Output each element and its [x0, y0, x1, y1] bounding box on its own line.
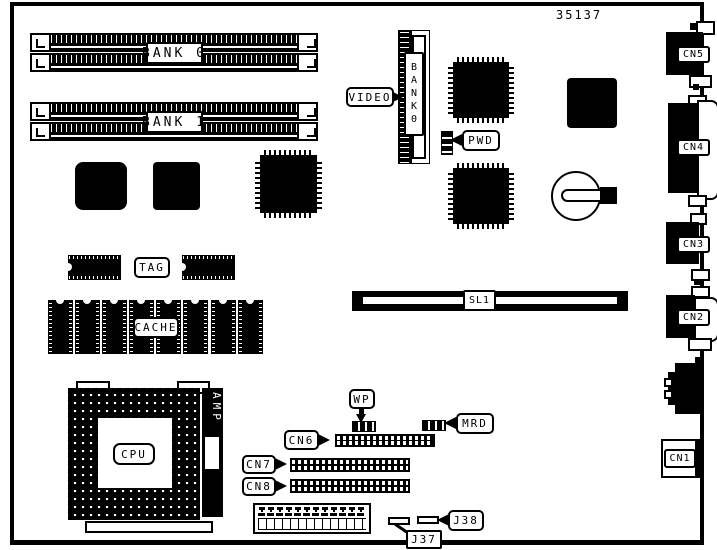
- cn6-pointer-icon: [318, 434, 330, 446]
- cache-chip: [211, 300, 236, 354]
- cn8-pointer-icon: [275, 480, 287, 492]
- amp-pad: [205, 437, 219, 469]
- keyboard-connector: [668, 372, 700, 405]
- motherboard-diagram: 35137 BANK 0 BANK 1 BANK0: [0, 0, 717, 550]
- tag-label: TAG: [134, 257, 170, 278]
- cn4-label: CN4: [677, 139, 710, 156]
- video-label: VIDEO: [346, 87, 394, 107]
- cn8-header: [290, 479, 410, 493]
- video-bank0-label: BANK0: [404, 52, 424, 136]
- edge-tab: [688, 195, 707, 207]
- cn8-label: CN8: [242, 477, 276, 496]
- keyboard-connector-pin: [664, 378, 673, 387]
- j38-label: J38: [448, 510, 484, 531]
- simm-latch-icon: [30, 33, 51, 52]
- power-connector: [253, 503, 371, 534]
- wp-pointer-icon: [356, 414, 366, 423]
- bank0-label: BANK 0: [146, 42, 203, 64]
- part-number: 35137: [556, 8, 602, 22]
- mrd-pointer-icon: [444, 417, 456, 429]
- cn1-connector-edge: [695, 439, 704, 478]
- cache-chip: [75, 300, 100, 354]
- board-edge-bottom: [10, 540, 704, 545]
- cn6-header: [335, 434, 435, 447]
- cn3-label: CN3: [677, 236, 710, 253]
- chip: [75, 162, 127, 210]
- cache-chip: [102, 300, 127, 354]
- simm-latch-icon: [30, 102, 51, 121]
- chip: [567, 78, 617, 128]
- cn7-pointer-icon: [275, 458, 287, 470]
- wp-label: WP: [349, 389, 375, 409]
- tag-chip: [182, 255, 235, 280]
- tag-chip: [68, 255, 121, 280]
- pwd-pointer-icon: [450, 134, 462, 146]
- cache-chip: [48, 300, 73, 354]
- cn5-label: CN5: [677, 46, 710, 63]
- cpu-socket-lever: [85, 521, 213, 533]
- edge-tab: [694, 279, 700, 285]
- cache-label: CACHE: [133, 317, 179, 338]
- cache-chip: [183, 300, 208, 354]
- board-edge-left: [10, 2, 14, 545]
- battery-clip-end: [600, 187, 617, 204]
- cache-chip: [238, 300, 263, 354]
- keyboard-connector: [675, 405, 700, 414]
- cn1-label: CN1: [664, 449, 696, 468]
- sl1-label: SL1: [463, 290, 496, 311]
- simm-latch-icon: [30, 122, 51, 141]
- cn6-label: CN6: [284, 430, 319, 450]
- keyboard-connector: [675, 363, 700, 372]
- mrd-label: MRD: [456, 413, 494, 434]
- chip: [153, 162, 200, 210]
- edge-tab: [688, 338, 712, 351]
- j38-jumper: [417, 516, 439, 524]
- mrd-jumper: [422, 420, 446, 431]
- j37-jumper: [388, 517, 410, 525]
- edge-tab: [693, 84, 699, 90]
- simm-latch-icon: [297, 53, 318, 72]
- bank1-label: BANK 1: [146, 111, 203, 133]
- qfp-chip: [448, 57, 514, 123]
- cn2-label: CN2: [677, 309, 710, 326]
- board-edge-top: [10, 2, 704, 6]
- pwd-label: PWD: [462, 130, 500, 151]
- simm-latch-icon: [297, 122, 318, 141]
- simm-latch-icon: [297, 102, 318, 121]
- cn7-label: CN7: [242, 455, 276, 474]
- simm-latch-icon: [297, 33, 318, 52]
- keyboard-connector-pin: [664, 390, 673, 399]
- simm-latch-icon: [30, 53, 51, 72]
- qfp-chip: [448, 163, 514, 229]
- cn7-header: [290, 458, 410, 472]
- qfp-chip: [255, 150, 322, 218]
- battery-clip: [561, 189, 605, 202]
- cpu-label: CPU: [113, 443, 155, 465]
- j37-label: J37: [406, 530, 442, 549]
